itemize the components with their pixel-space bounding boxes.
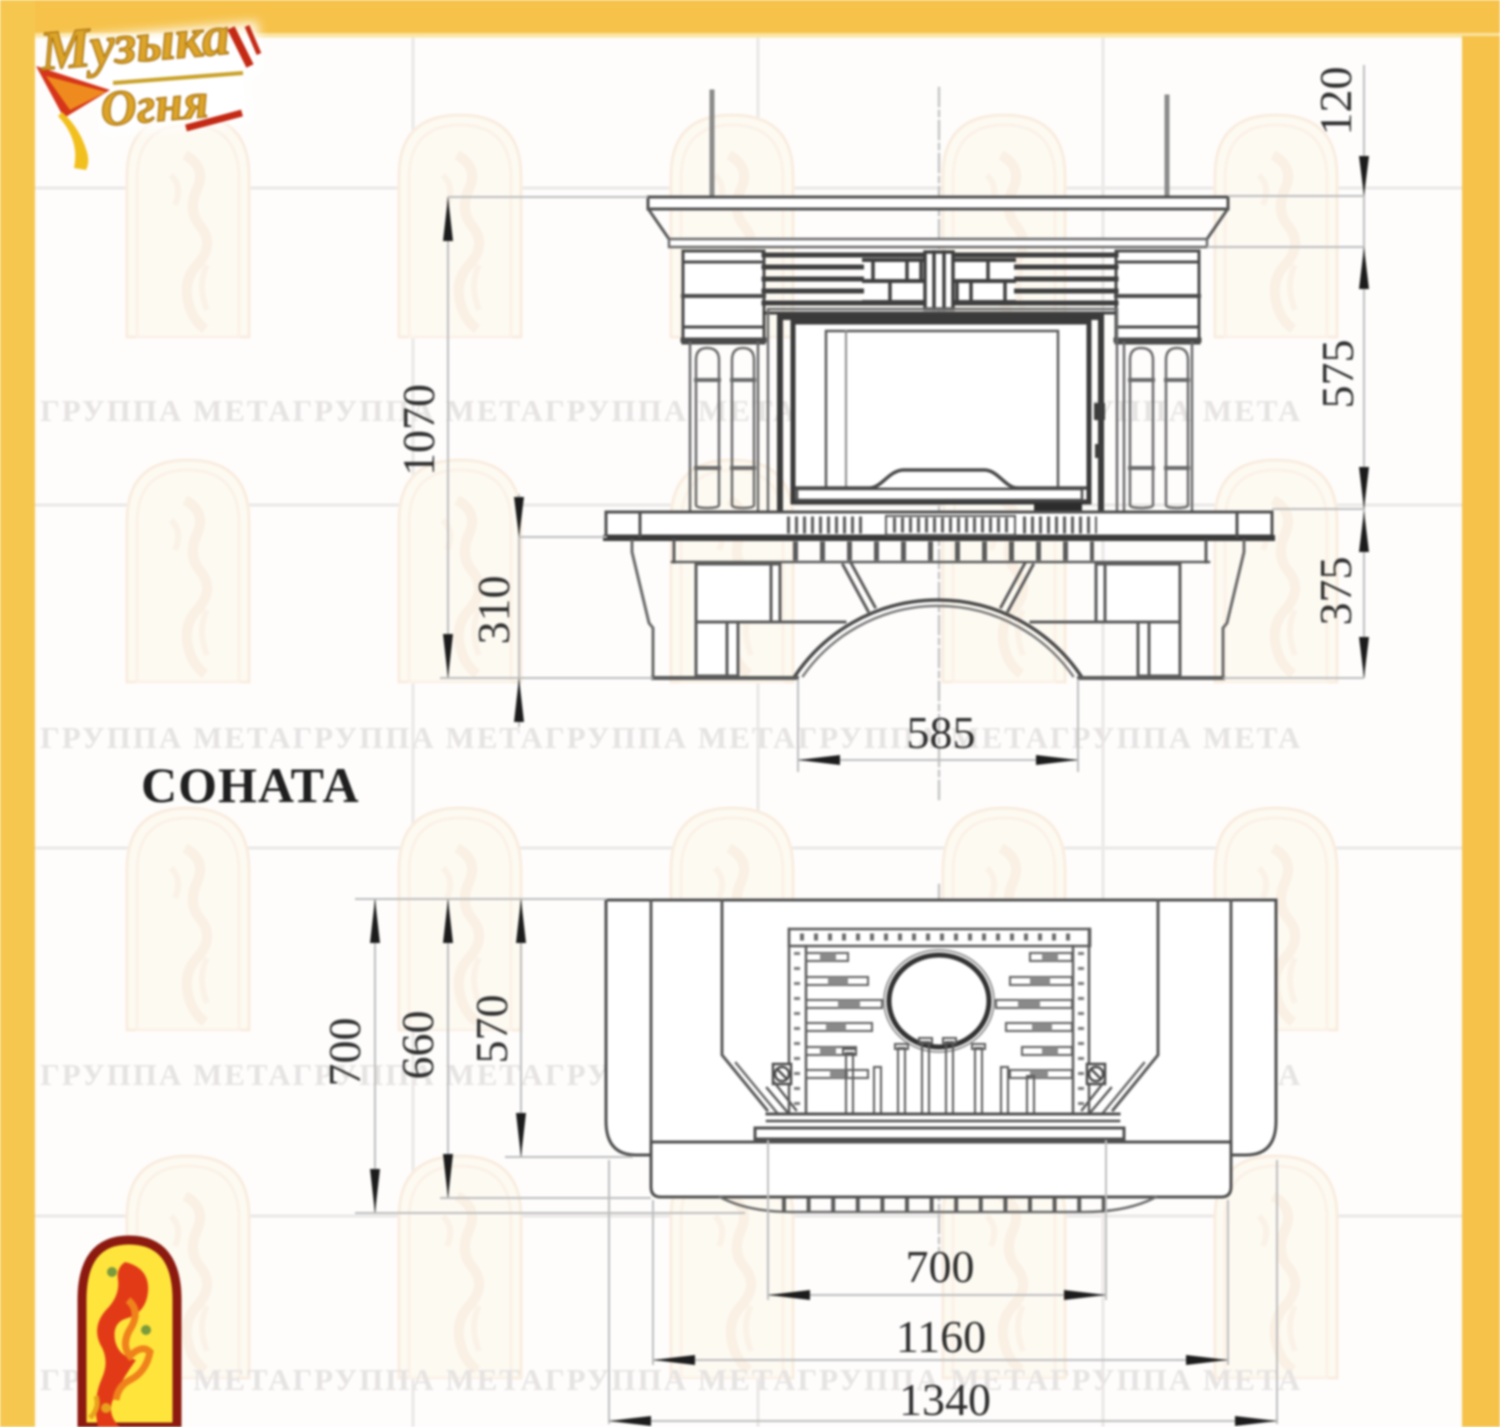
svg-text:1160: 1160 <box>896 1311 986 1362</box>
svg-text:1340: 1340 <box>899 1374 991 1425</box>
svg-text:570: 570 <box>466 995 517 1064</box>
svg-text:575: 575 <box>1312 340 1363 409</box>
svg-text:СОНАТА: СОНАТА <box>141 757 360 813</box>
svg-text:375: 375 <box>1310 557 1361 626</box>
svg-text:1070: 1070 <box>393 384 444 476</box>
svg-text:310: 310 <box>468 576 519 645</box>
svg-text:700: 700 <box>319 1018 370 1087</box>
svg-text:660: 660 <box>392 1011 443 1080</box>
svg-text:585: 585 <box>907 707 976 758</box>
svg-text:700: 700 <box>906 1241 975 1292</box>
svg-text:120: 120 <box>1310 67 1361 136</box>
